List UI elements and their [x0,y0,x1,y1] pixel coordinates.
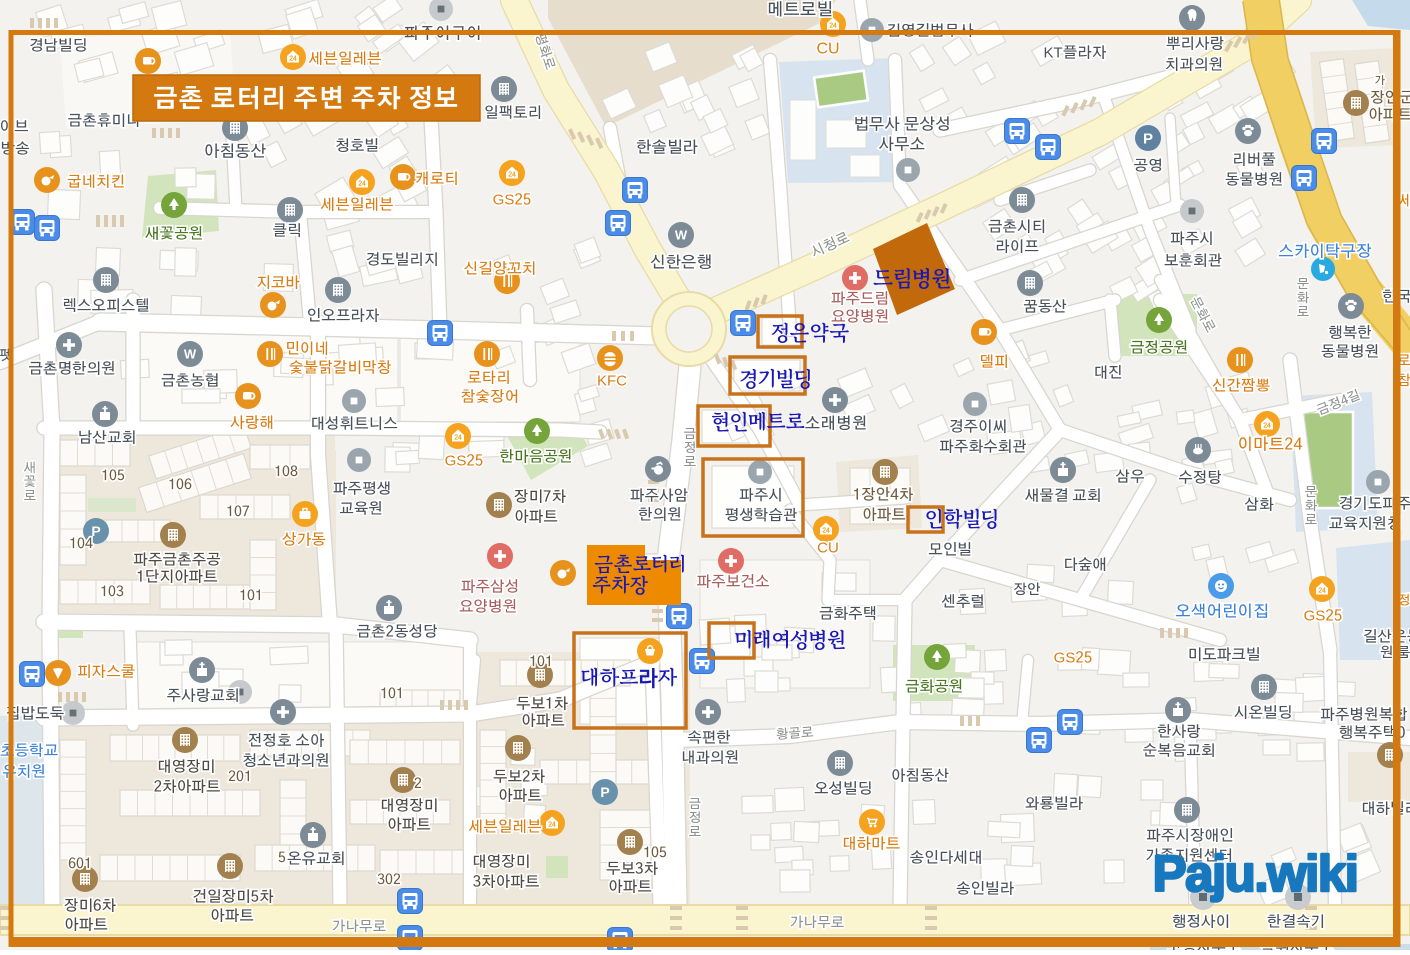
svg-text:집밥도둑: 집밥도둑 [6,705,64,722]
svg-text:황골로: 황골로 [775,725,814,742]
svg-text:민이네: 민이네 [285,341,329,357]
svg-text:24: 24 [829,22,837,30]
svg-text:신간짬뽕: 신간짬뽕 [1212,377,1270,394]
svg-text:파주시: 파주시 [1170,231,1214,247]
svg-text:두보2차: 두보2차 [493,769,546,785]
svg-text:인학빌딩: 인학빌딩 [925,504,999,534]
svg-text:Paju.wiki: Paju.wiki [1153,845,1358,902]
svg-text:소래병원: 소래병원 [805,415,867,433]
svg-text:금화주택: 금화주택 [819,606,877,622]
svg-text:한의원: 한의원 [638,506,682,523]
svg-text:금: 금 [684,427,697,441]
svg-text:주차장: 주차장 [592,570,649,599]
svg-text:한마음공원: 한마음공원 [500,448,573,465]
svg-text:교육지원청: 교육지원청 [1329,515,1402,532]
svg-text:파주삼성: 파주삼성 [461,578,519,595]
svg-text:청호빌: 청호빌 [335,137,379,154]
svg-text:다숲애: 다숲애 [1063,557,1107,573]
svg-text:수정탕: 수정탕 [1178,470,1222,486]
svg-text:대영장미: 대영장미 [157,758,215,775]
svg-text:한솔빌라: 한솔빌라 [636,139,698,157]
svg-text:대영장미: 대영장미 [380,797,438,814]
svg-text:경도빌리지: 경도빌리지 [366,251,439,268]
svg-text:GS25: GS25 [1304,608,1343,624]
svg-text:굽네치킨: 굽네치킨 [67,173,125,190]
svg-text:새꽃공원: 새꽃공원 [145,225,203,242]
svg-text:W: W [184,349,197,362]
svg-text:가나무로: 가나무로 [790,915,844,930]
svg-text:새물결 교회: 새물결 교회 [1025,487,1102,504]
svg-text:참숯장어: 참숯장어 [461,388,519,405]
svg-text:금촌명한의원: 금촌명한의원 [28,360,116,377]
svg-text:금촌농협: 금촌농협 [161,372,219,389]
svg-text:신길양꼬치: 신길양꼬치 [464,260,537,277]
svg-text:24: 24 [289,55,297,63]
svg-text:24: 24 [454,434,462,442]
svg-text:파주사암: 파주사암 [630,487,688,504]
svg-text:금촌휴미니: 금촌휴미니 [68,112,141,129]
svg-text:24: 24 [1263,422,1271,430]
svg-text:로: 로 [24,490,37,503]
svg-text:세븐일레븐: 세븐일레븐 [321,196,394,213]
svg-text:24: 24 [1318,587,1326,595]
svg-text:파주평생: 파주평생 [333,480,391,497]
svg-text:인오프라자: 인오프라자 [307,308,380,324]
svg-text:2차아파트: 2차아파트 [154,779,221,795]
svg-text:파주시장애인: 파주시장애인 [1146,828,1234,844]
svg-text:2: 2 [414,777,422,791]
svg-text:꿈동산: 꿈동산 [1023,299,1067,315]
svg-text:온유교회: 온유교회 [287,851,345,867]
svg-text:아파트: 아파트 [64,917,108,933]
svg-text:24: 24 [548,821,556,829]
svg-text:주사랑교회: 주사랑교회 [167,687,240,704]
svg-text:경기빌딩: 경기빌딩 [740,364,813,394]
svg-text:103: 103 [100,585,124,599]
svg-text:송인빌라: 송인빌라 [956,880,1015,897]
svg-text:105: 105 [643,846,667,860]
svg-text:GS25: GS25 [493,192,532,208]
svg-text:오색어린이집: 오색어린이집 [1175,603,1268,621]
svg-text:24: 24 [508,171,516,179]
svg-text:센추럴: 센추럴 [941,593,985,610]
svg-text:GS25: GS25 [1054,650,1093,666]
svg-text:신한은행: 신한은행 [650,254,712,272]
svg-text:세븐일레븐: 세븐일레븐 [469,818,542,835]
svg-text:대진: 대진 [1093,365,1122,381]
svg-text:1단지아파트: 1단지아파트 [136,569,217,585]
svg-text:문: 문 [1305,486,1318,499]
svg-text:금촌 로터리 주변 주차 정보: 금촌 로터리 주변 주차 정보 [153,85,459,113]
svg-text:장미7차: 장미7차 [514,489,567,505]
svg-text:오성빌딩: 오성빌딩 [814,780,872,797]
svg-text:아침동산: 아침동산 [891,767,949,784]
svg-text:24: 24 [822,527,830,535]
svg-text:내과의원: 내과의원 [681,749,739,766]
svg-text:104: 104 [69,537,93,551]
svg-text:속편한: 속편한 [687,729,731,746]
svg-text:사무소: 사무소 [879,136,926,154]
svg-text:P: P [1143,132,1153,147]
svg-text:106: 106 [168,478,192,492]
svg-text:장안: 장안 [1013,582,1040,597]
svg-text:대하프라자: 대하프라자 [580,663,677,693]
svg-text:101: 101 [380,687,404,701]
svg-text:동물병원: 동물병원 [1225,171,1283,188]
svg-text:W: W [675,230,688,243]
svg-text:파주시: 파주시 [739,488,783,504]
svg-text:행정사이: 행정사이 [1172,913,1230,930]
svg-text:가나무로: 가나무로 [332,919,386,934]
svg-text:요양병원: 요양병원 [459,598,517,615]
svg-text:108: 108 [274,465,298,479]
svg-text:아파트: 아파트 [387,817,431,833]
svg-text:5: 5 [278,851,286,865]
svg-text:24: 24 [358,180,366,188]
svg-text:GS25: GS25 [445,453,484,469]
svg-text:이마트24: 이마트24 [1238,436,1303,454]
svg-text:파주금촌주공: 파주금촌주공 [133,551,221,568]
svg-text:1장안4차: 1장안4차 [853,487,914,503]
svg-text:아파트: 아파트 [514,509,558,525]
svg-text:리버풀: 리버풀 [1232,151,1276,168]
svg-text:금정공원: 금정공원 [1130,339,1188,356]
svg-text:대하빌라: 대하빌라 [1361,800,1410,817]
svg-text:남산교회: 남산교회 [78,430,136,446]
svg-text:3차아파트: 3차아파트 [473,874,540,890]
svg-text:방송: 방송 [0,140,29,157]
svg-text:교육원: 교육원 [339,500,383,517]
svg-text:금화공원: 금화공원 [905,678,963,695]
svg-text:송인다세대: 송인다세대 [910,849,983,866]
svg-text:로: 로 [684,456,697,469]
svg-text:장안군: 장안군 [1370,90,1410,106]
svg-text:P: P [600,786,609,800]
svg-text:아파트: 아파트 [210,908,254,924]
svg-text:601: 601 [68,857,92,871]
svg-text:CU: CU [816,42,839,58]
svg-text:클릭: 클릭 [272,222,301,239]
svg-text:시온빌딩: 시온빌딩 [1234,704,1292,721]
svg-text:캐로티: 캐로티 [415,171,459,187]
svg-text:금촌시티: 금촌시티 [988,218,1046,235]
svg-text:아파트: 아파트 [608,879,652,895]
svg-text:일팩토리: 일팩토리 [484,104,542,121]
svg-text:두보3차: 두보3차 [606,861,659,877]
svg-text:치과의원: 치과의원 [1165,56,1223,73]
svg-text:화: 화 [1297,291,1310,305]
svg-text:델피: 델피 [979,353,1008,370]
svg-text:메트로빌: 메트로빌 [767,1,833,19]
svg-text:KFC: KFC [597,374,627,389]
svg-text:새: 새 [24,461,37,475]
svg-text:사랑해: 사랑해 [230,414,274,431]
svg-text:아파트: 아파트 [521,713,565,729]
svg-text:대성휘트니스: 대성휘트니스 [310,415,398,432]
svg-text:CU: CU [817,541,839,556]
svg-text:금: 금 [689,797,702,811]
svg-text:아파트: 아파트 [862,507,906,523]
svg-text:삼화: 삼화 [1244,496,1274,513]
svg-text:스카이탁구장: 스카이탁구장 [1278,243,1372,261]
svg-text:렉스오피스텔: 렉스오피스텔 [62,297,150,314]
svg-text:동물병원: 동물병원 [1321,343,1379,360]
svg-text:101: 101 [239,589,263,603]
svg-text:화: 화 [1305,499,1318,513]
svg-text:세븐일레븐: 세븐일레븐 [309,50,382,67]
svg-text:청소년과의원: 청소년과의원 [242,752,330,769]
svg-text:105: 105 [101,469,125,483]
svg-text:한결속기: 한결속기 [1267,913,1325,930]
svg-text:로타리: 로타리 [467,370,511,386]
svg-text:공영: 공영 [1133,157,1162,174]
svg-text:뿌리사랑: 뿌리사랑 [1166,35,1225,52]
svg-text:숯불닭갈비막창: 숯불닭갈비막창 [289,359,391,376]
svg-text:101: 101 [529,655,553,669]
svg-text:순복음교회: 순복음교회 [1143,742,1216,759]
svg-text:장미6차: 장미6차 [64,898,117,914]
svg-text:문: 문 [1297,278,1310,291]
svg-text:금촌2동성당: 금촌2동성당 [356,623,437,640]
svg-text:현인메트로: 현인메트로 [711,407,805,437]
svg-text:대영장미: 대영장미 [472,853,530,870]
svg-text:로: 로 [689,826,702,839]
svg-text:아파트: 아파트 [498,788,542,804]
svg-text:대하마트: 대하마트 [842,836,900,852]
svg-text:보훈회관: 보훈회관 [1164,252,1222,269]
svg-text:길산운동: 길산운동 [1363,628,1410,645]
svg-text:파주화수회관: 파주화수회관 [939,438,1027,455]
svg-text:와룡빌라: 와룡빌라 [1025,795,1084,812]
svg-text:상가동: 상가동 [282,531,326,548]
svg-text:아침동산: 아침동산 [204,143,267,161]
svg-text:삼우: 삼우 [1115,468,1144,485]
svg-text:로: 로 [1305,514,1318,527]
svg-text:정: 정 [684,441,697,455]
svg-text:로: 로 [1297,306,1310,319]
svg-text:전정호 소아: 전정호 소아 [248,733,325,749]
svg-text:드림병원: 드림병원 [873,262,951,294]
svg-text:경주이씨: 경주이씨 [949,418,1007,435]
svg-text:201: 201 [228,770,252,784]
svg-text:라이프: 라이프 [995,239,1039,255]
svg-text:가: 가 [1375,75,1386,87]
svg-text:꽃: 꽃 [24,476,37,489]
svg-text:파주보건소: 파주보건소 [697,574,770,590]
svg-text:KT플라자: KT플라자 [1044,44,1107,61]
svg-text:모인빌: 모인빌 [928,541,972,558]
svg-text:경남빌딩: 경남빌딩 [29,37,87,54]
svg-text:피자스쿨: 피자스쿨 [77,663,135,680]
svg-text:아파트: 아파트 [1368,107,1410,123]
svg-text:건일장미5차: 건일장미5차 [192,888,274,905]
svg-text:한사랑: 한사랑 [1157,723,1201,740]
svg-text:정: 정 [689,811,702,825]
svg-text:정은약국: 정은약국 [771,318,849,348]
svg-text:302: 302 [377,873,401,887]
svg-text:지코바: 지코바 [256,275,300,291]
svg-text:미도파크빌: 미도파크빌 [1188,646,1261,663]
svg-text:평생학습관: 평생학습관 [725,507,798,524]
svg-text:107: 107 [226,505,250,519]
svg-text:두보1차: 두보1차 [516,696,569,712]
svg-text:미래여성병원: 미래여성병원 [735,625,846,655]
svg-text:행복한: 행복한 [1328,324,1372,341]
svg-text:법무사 문상성: 법무사 문상성 [853,116,950,134]
svg-text:이브: 이브 [0,119,29,135]
